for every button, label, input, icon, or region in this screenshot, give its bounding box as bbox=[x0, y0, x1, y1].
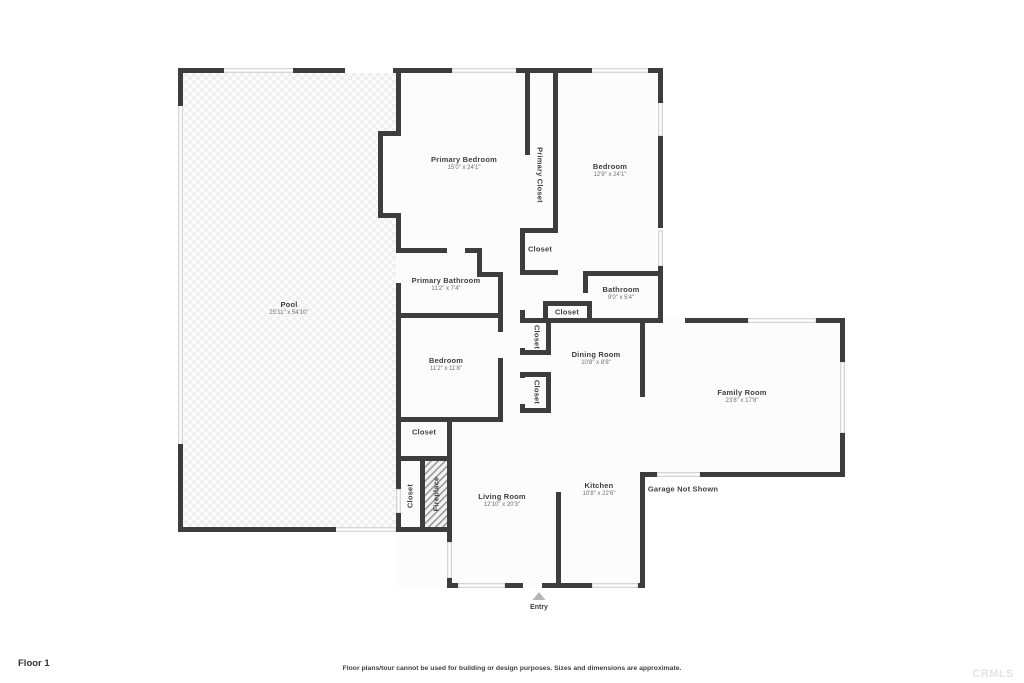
disclaimer-text: Floor plans/tour cannot be used for buil… bbox=[343, 665, 682, 672]
room-label-primary-bedroom: Primary Bedroom 15'0" x 24'1" bbox=[431, 155, 497, 173]
room-label-bathroom: Bathroom 9'0" x 5'4" bbox=[602, 285, 639, 303]
room-label-closet-entry: Closet bbox=[405, 484, 414, 508]
floor-label: Floor 1 bbox=[18, 658, 50, 669]
room-label-fireplace: Fireplace bbox=[431, 477, 440, 512]
entry-arrow-icon bbox=[533, 592, 546, 600]
floor-plan-svg bbox=[0, 0, 1024, 683]
crmls-watermark: CRMLS bbox=[972, 668, 1014, 680]
room-label-pool: Pool 25'11" x 54'10" bbox=[269, 300, 308, 318]
room-label-bedroom-middle: Bedroom 11'2" x 11'8" bbox=[429, 356, 463, 374]
room-label-closet-bedroom: Closet bbox=[412, 427, 436, 436]
room-label-closet-primary-hall: Closet bbox=[528, 244, 552, 253]
room-label-dining-room: Dining Room 10'8" x 8'8" bbox=[572, 350, 621, 368]
room-label-primary-closet: Primary Closet bbox=[535, 147, 544, 203]
closet-recess bbox=[381, 134, 399, 215]
room-label-living-room: Living Room 12'10" x 20'3" bbox=[478, 492, 526, 510]
room-label-garage: Garage Not Shown bbox=[648, 484, 718, 493]
room-label-kitchen: Kitchen 10'8" x 22'6" bbox=[583, 481, 616, 499]
room-label-bedroom-upper: Bedroom 12'9" x 24'1" bbox=[593, 162, 627, 180]
room-fills bbox=[396, 68, 845, 588]
room-label-primary-bathroom: Primary Bathroom 11'2" x 7'4" bbox=[412, 276, 481, 294]
room-label-closet-hall-mid: Closet bbox=[532, 325, 541, 349]
room-label-closet-hall-lower: Closet bbox=[532, 380, 541, 404]
room-label-closet-hall-top: Closet bbox=[555, 307, 579, 316]
floor-plan: Pool 25'11" x 54'10" Primary Bedroom 15'… bbox=[0, 0, 1024, 683]
room-label-family-room: Family Room 23'8" x 17'8" bbox=[717, 388, 766, 406]
entry-label: Entry bbox=[530, 604, 548, 611]
